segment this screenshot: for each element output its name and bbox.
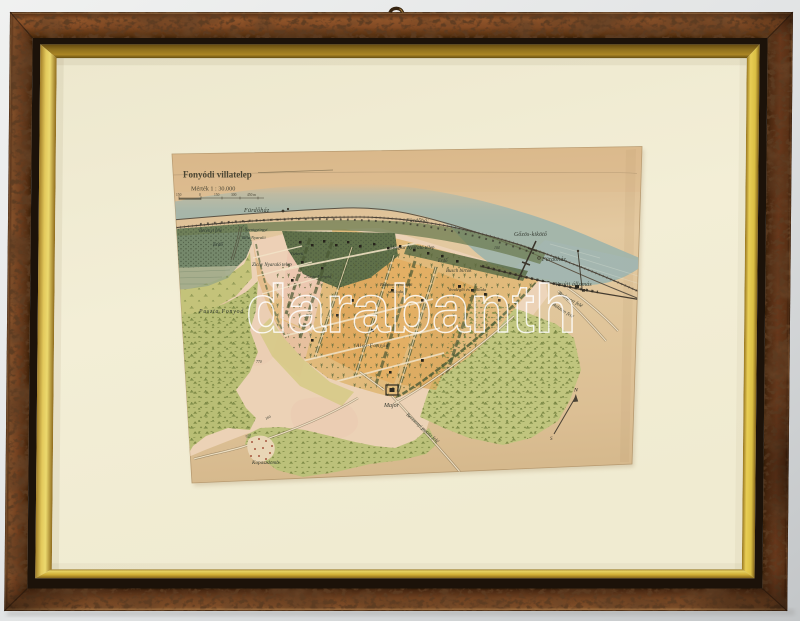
svg-text:darabanth: darabanth: [246, 271, 577, 347]
svg-text:Erdő: Erdő: [437, 259, 448, 264]
svg-text:104: 104: [494, 246, 500, 250]
svg-text:Mérték 1 : 30.000: Mérték 1 : 30.000: [191, 186, 235, 193]
svg-text:Fürdőház: Fürdőház: [541, 256, 566, 263]
svg-text:Fürdőhá:: Fürdőhá:: [405, 217, 429, 224]
svg-text:Major: Major: [383, 403, 400, 409]
svg-text:Erdő: Erdő: [212, 243, 223, 248]
svg-text:Fürdőház: Fürdőház: [243, 207, 270, 214]
svg-text:Magyar Nyaraló télep: Magyar Nyaraló télep: [389, 246, 435, 251]
svg-text:450 m: 450 m: [247, 193, 256, 197]
svg-text:0: 0: [199, 193, 201, 197]
svg-text:150: 150: [214, 193, 220, 197]
svg-text:300: 300: [231, 193, 237, 197]
svg-text:Gőzös-kikötő: Gőzös-kikötő: [514, 231, 548, 238]
svg-text:Vízterü: Vízterü: [290, 251, 304, 256]
svg-text:Berényi féle: Berényi féle: [199, 229, 223, 234]
svg-text:Puszta Fonyod: Puszta Fonyod: [198, 309, 244, 315]
svg-text:Fonyódi villatelep: Fonyódi villatelep: [183, 170, 252, 180]
svg-text:Béla Nyaraló: Béla Nyaraló: [242, 235, 266, 240]
svg-text:Zichy Nyaraló telep: Zichy Nyaraló telep: [252, 263, 292, 268]
svg-text:Szentgyörgyi: Szentgyörgyi: [245, 227, 268, 232]
svg-text:770: 770: [256, 360, 262, 364]
svg-text:Kopaszdomb: Kopaszdomb: [251, 460, 279, 466]
